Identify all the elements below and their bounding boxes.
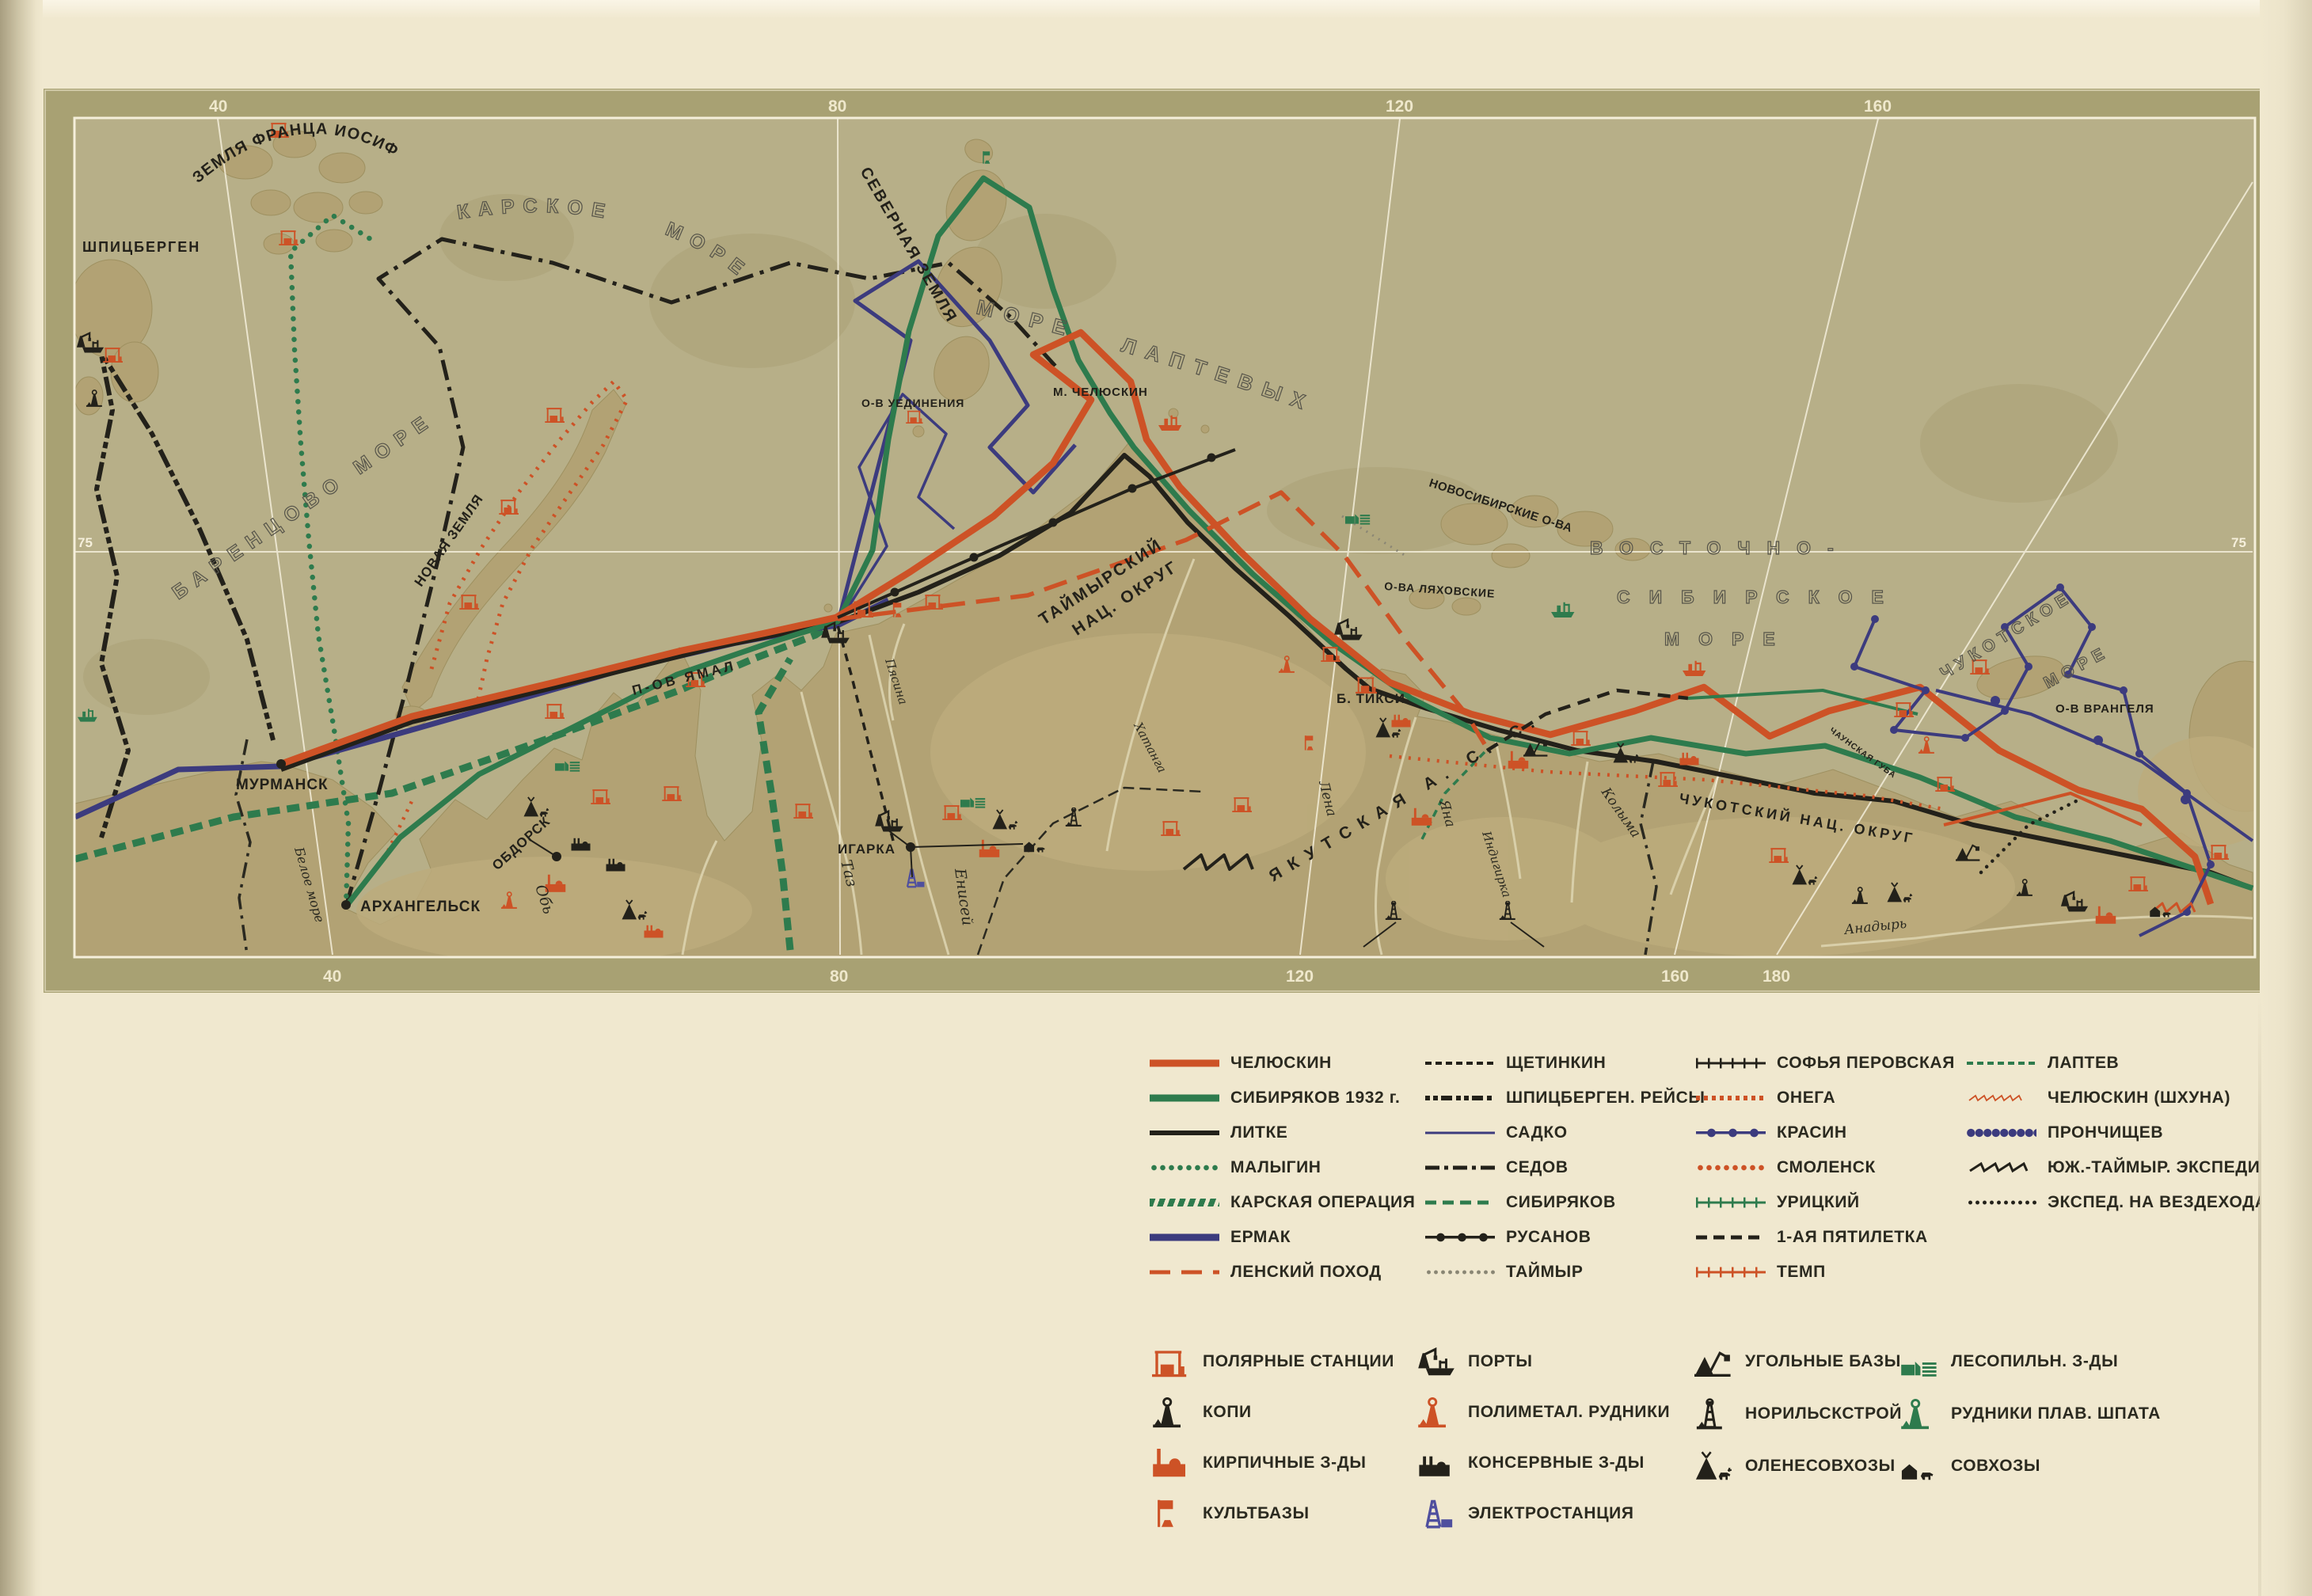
swatch-schetinkin [1425,1056,1495,1070]
legend-row-power: ЭЛЕКТРОСТАНЦИЯ [1417,1496,1670,1531]
legend-label: ТАЙМЫР [1506,1263,1583,1282]
legend-row-ermak: ЕРМАК [1150,1230,1415,1244]
legend-row-karskaya: КАРСКАЯ ОПЕРАЦИЯ [1150,1195,1415,1210]
book-gutter-shadow [0,0,43,1596]
swatch-ermak [1150,1230,1219,1244]
swatch-lensky [1150,1265,1219,1279]
swatch-sofya [1696,1056,1766,1070]
legend-label: РУСАНОВ [1506,1228,1591,1247]
polymetal-mine-icon [1417,1396,1455,1428]
legend-label: ПОЛЯРНЫЕ СТАНЦИИ [1203,1352,1394,1371]
legend-row-vezdekhody: ЭКСПЕД. НА ВЕЗДЕХОДАХ [1967,1195,2279,1210]
sawmill-icon [1900,1346,1938,1377]
swatch-chelyuskin [1150,1056,1219,1070]
legend-row-onega: ОНЕГА [1696,1091,1955,1105]
object-legend-col-4: ЛЕСОПИЛЬН. З-ДЫ РУДНИКИ ПЛАВ. ШПАТА СОВХ… [1900,1344,2161,1484]
swatch-karskaya [1150,1195,1219,1210]
legend-label: СИБИРЯКОВ [1506,1193,1616,1212]
legend-label: КАРСКАЯ ОПЕРАЦИЯ [1230,1193,1415,1212]
legend-row-smolensk: СМОЛЕНСК [1696,1161,1955,1175]
swatch-vezdekhody [1967,1195,2036,1210]
swatch-pyatiletka [1696,1230,1766,1244]
swatch-onega [1696,1091,1766,1105]
grid-bottom-80: 80 [830,967,848,986]
page-top-light [0,0,2312,19]
legend-row-laptev: ЛАПТЕВ [1967,1056,2279,1070]
legend-row-yuzh-taimyr: ЮЖ.-ТАЙМЫР. ЭКСПЕДИЦ. [1967,1161,2279,1175]
grid-bottom-120: 120 [1286,967,1314,986]
swatch-laptev [1967,1056,2036,1070]
swatch-sibiryakov-1932 [1150,1091,1219,1105]
swatch-litke [1150,1126,1219,1140]
legend-label: ЭЛЕКТРОСТАНЦИЯ [1468,1504,1634,1523]
swatch-taimyr [1425,1265,1495,1279]
legend-row-reindeer: ОЛЕНЕСОВХОЗЫ [1694,1449,1902,1484]
legend-label: УГОЛЬНЫЕ БАЗЫ [1745,1352,1901,1371]
mine-icon [1152,1396,1190,1428]
route-legend-col-3: СОФЬЯ ПЕРОВСКАЯ ОНЕГА КРАСИН СМОЛЕНСК УР… [1696,1056,1955,1279]
legend-row-shkhuna: ЧЕЛЮСКИН (ШХУНА) [1967,1091,2279,1105]
grid-bottom-160: 160 [1661,967,1689,986]
label-east-siberian-3: МОРЕ [1664,629,1794,649]
legend-label: ЛАПТЕВ [2048,1054,2119,1073]
route-legend-col-4: ЛАПТЕВ ЧЕЛЮСКИН (ШХУНА) ПРОНЧИЩЕВ ЮЖ.-ТА… [1967,1056,2279,1210]
grid-top-120: 120 [1386,97,1413,116]
legend-label: ЮЖ.-ТАЙМЫР. ЭКСПЕДИЦ. [2048,1158,2278,1177]
legend-row-schetinkin: ЩЕТИНКИН [1425,1056,1705,1070]
route-legend-col-2: ЩЕТИНКИН ШПИЦБЕРГЕН. РЕЙСЫ САДКО СЕДОВ С… [1425,1056,1705,1279]
legend-label: 1-АЯ ПЯТИЛЕТКА [1777,1228,1928,1247]
legend-row-litke: ЛИТКЕ [1150,1126,1415,1140]
legend-row-uritsky: УРИЦКИЙ [1696,1195,1955,1210]
swatch-shkhuna [1967,1091,2036,1105]
grid-bottom-40: 40 [323,967,341,986]
legend-label: ТЕМП [1777,1263,1826,1282]
legend-row-taimyr: ТАЙМЫР [1425,1265,1705,1279]
port-icon [1417,1346,1455,1377]
legend-label: КРАСИН [1777,1123,1847,1142]
legend-label: ПОРТЫ [1468,1352,1533,1371]
reindeer-sovkhoz-icon [1694,1450,1732,1482]
legend-row-spar: РУДНИКИ ПЛАВ. ШПАТА [1900,1396,2161,1431]
legend-row-sibiryakov-1932: СИБИРЯКОВ 1932 г. [1150,1091,1415,1105]
page-right-edge [2260,0,2312,1596]
page-crease [2258,994,2261,1596]
grid-left-75: 75 [78,535,93,550]
legend-row-sawmill: ЛЕСОПИЛЬН. З-ДЫ [1900,1344,2161,1379]
legend-row-temp: ТЕМП [1696,1265,1955,1279]
legend-label: ЕРМАК [1230,1228,1291,1247]
legend-label: ЩЕТИНКИН [1506,1054,1606,1073]
grid-top-40: 40 [209,97,227,116]
legend-label: ЛИТКЕ [1230,1123,1287,1142]
legend-label: СИБИРЯКОВ 1932 г. [1230,1089,1400,1108]
legend-label: ОЛЕНЕСОВХОЗЫ [1745,1457,1896,1476]
legend-row-sedov: СЕДОВ [1425,1161,1705,1175]
kultbaza-flag-icon [1152,1498,1190,1529]
swatch-sedov [1425,1161,1495,1175]
legend-label: ПОЛИМЕТАЛ. РУДНИКИ [1468,1403,1670,1422]
legend-row-sibiryakov: СИБИРЯКОВ [1425,1195,1705,1210]
legend-label: НОРИЛЬСКСТРОЙ [1745,1404,1902,1423]
grid-right-75: 75 [2231,535,2246,550]
legend-row-sadko: САДКО [1425,1126,1705,1140]
swatch-temp [1696,1265,1766,1279]
swatch-shpitsbergen [1425,1091,1495,1105]
legend-label: КИРПИЧНЫЕ З-ДЫ [1203,1453,1367,1472]
legend-row-krasin: КРАСИН [1696,1126,1955,1140]
swatch-sibiryakov [1425,1195,1495,1210]
legend-row-polar-stations: ПОЛЯРНЫЕ СТАНЦИИ [1152,1344,1394,1379]
legend-row-polymetal: ПОЛИМЕТАЛ. РУДНИКИ [1417,1395,1670,1430]
grid-top-160: 160 [1864,97,1892,116]
legend-row-malygin: МАЛЫГИН [1150,1161,1415,1175]
legend-label: КОПИ [1203,1403,1252,1422]
swatch-pronchishchev [1967,1126,2036,1140]
label-arkhangelsk: АРХАНГЕЛЬСК [360,899,481,915]
legend-label: РУДНИКИ ПЛАВ. ШПАТА [1951,1404,2161,1423]
legend-label: САДКО [1506,1123,1568,1142]
route-legend-col-1: ЧЕЛЮСКИН СИБИРЯКОВ 1932 г. ЛИТКЕ МАЛЫГИН… [1150,1056,1415,1279]
legend-row-chelyuskin: ЧЕЛЮСКИН [1150,1056,1415,1070]
swatch-malygin [1150,1161,1219,1175]
legend-label: СОФЬЯ ПЕРОВСКАЯ [1777,1054,1955,1073]
label-east-siberian-1: ВОСТОЧНО- [1590,538,1850,558]
swatch-smolensk [1696,1161,1766,1175]
legend-label: ЭКСПЕД. НА ВЕЗДЕХОДАХ [2048,1193,2279,1212]
polar-station-icon [1152,1346,1190,1377]
legend-row-coal: УГОЛЬНЫЕ БАЗЫ [1694,1344,1902,1379]
legend-label: СЕДОВ [1506,1158,1569,1177]
legend-label: КОНСЕРВНЫЕ З-ДЫ [1468,1453,1645,1472]
cannery-icon [1417,1447,1455,1479]
swatch-krasin [1696,1126,1766,1140]
legend-row-kultbazy: КУЛЬТБАЗЫ [1152,1496,1394,1531]
label-east-siberian-2: СИБИРСКОЕ [1617,587,1903,607]
legend-label: ШПИЦБЕРГЕН. РЕЙСЫ [1506,1089,1705,1108]
legend-label: МАЛЫГИН [1230,1158,1321,1177]
legend-row-ports: ПОРТЫ [1417,1344,1670,1379]
object-legend-col-3: УГОЛЬНЫЕ БАЗЫ НОРИЛЬСКСТРОЙ ОЛЕНЕСОВХОЗЫ [1694,1344,1902,1484]
legend-row-pyatiletka: 1-АЯ ПЯТИЛЕТКА [1696,1230,1955,1244]
swatch-yuzh-taimyr [1967,1161,2036,1175]
label-uedineniya: О-В УЕДИНЕНИЯ [861,397,964,409]
legend-label: КУЛЬТБАЗЫ [1203,1504,1310,1523]
legend-row-pronchishchev: ПРОНЧИЩЕВ [1967,1126,2279,1140]
label-wrangel: О-В ВРАНГЕЛЯ [2055,702,2154,716]
legend-row-sovkhoz: СОВХОЗЫ [1900,1449,2161,1484]
brick-factory-icon [1152,1447,1190,1479]
legend-row-norilsk: НОРИЛЬСКСТРОЙ [1694,1396,1902,1431]
grid-bottom-180: 180 [1763,967,1790,986]
grid-top-80: 80 [828,97,846,116]
power-station-icon [1417,1498,1455,1529]
label-tiksi: Б. ТИКСИ [1337,691,1405,706]
legend-row-sofya: СОФЬЯ ПЕРОВСКАЯ [1696,1056,1955,1070]
coal-base-icon [1694,1346,1732,1377]
object-legend-col-2: ПОРТЫ ПОЛИМЕТАЛ. РУДНИКИ КОНСЕРВНЫЕ З-ДЫ… [1417,1344,1670,1531]
legend-label: ЧЕЛЮСКИН (ШХУНА) [2048,1089,2230,1108]
legend-label: СМОЛЕНСК [1777,1158,1876,1177]
sovkhoz-icon [1900,1450,1938,1482]
legend-row-shpitsbergen: ШПИЦБЕРГЕН. РЕЙСЫ [1425,1091,1705,1105]
legend-label: ЛЕСОПИЛЬН. З-ДЫ [1951,1352,2118,1371]
legend-label: ПРОНЧИЩЕВ [2048,1123,2163,1142]
swatch-rusanov [1425,1230,1495,1244]
legend-label: СОВХОЗЫ [1951,1457,2040,1476]
object-legend-col-1: ПОЛЯРНЫЕ СТАНЦИИ КОПИ КИРПИЧНЫЕ З-ДЫ КУЛ… [1152,1344,1394,1531]
label-murmansk: МУРМАНСК [236,777,329,793]
legend-row-rusanov: РУСАНОВ [1425,1230,1705,1244]
legend-label: ОНЕГА [1777,1089,1835,1108]
legend-row-brick: КИРПИЧНЫЕ З-ДЫ [1152,1446,1394,1480]
label-cape-chelyuskin: М. ЧЕЛЮСКИН [1053,386,1148,399]
legend-label: ЛЕНСКИЙ ПОХОД [1230,1263,1382,1282]
label-spitsbergen: ШПИЦБЕРГЕН [82,239,200,255]
legend-row-kopi: КОПИ [1152,1395,1394,1430]
label-igarka: ИГАРКА [838,842,896,857]
swatch-uritsky [1696,1195,1766,1210]
legend-row-cannery: КОНСЕРВНЫЕ З-ДЫ [1417,1446,1670,1480]
legend-label: УРИЦКИЙ [1777,1193,1860,1212]
legend-label: ЧЕЛЮСКИН [1230,1054,1332,1073]
legend-row-lensky: ЛЕНСКИЙ ПОХОД [1150,1265,1415,1279]
swatch-sadko [1425,1126,1495,1140]
norilskstroy-icon [1694,1398,1732,1430]
spar-mine-icon [1900,1398,1938,1430]
